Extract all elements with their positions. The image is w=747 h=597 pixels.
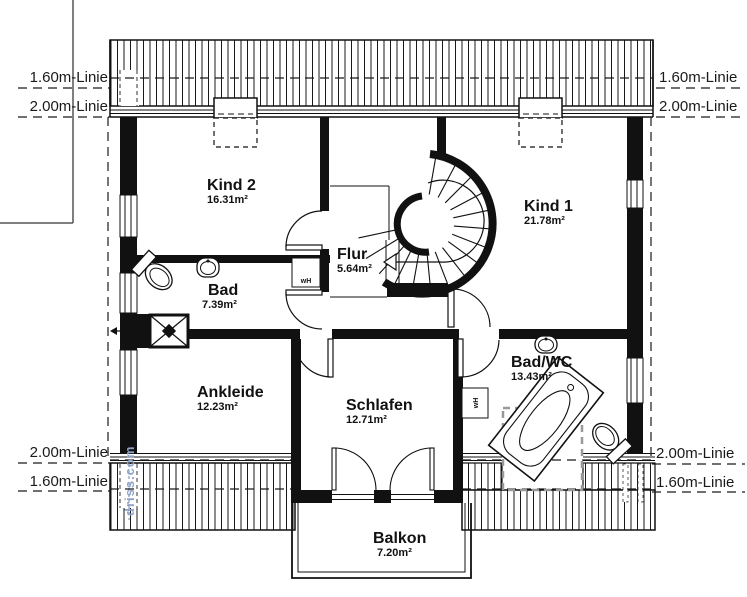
window-badwc: [627, 358, 643, 403]
watermark-text: driss.com: [122, 446, 137, 516]
room-label-kind1: Kind 1 21.78m²: [524, 198, 573, 227]
room-label-balkon: Balkon 7.20m²: [373, 530, 426, 559]
roof-strip-bottom-right: [462, 454, 655, 531]
door-balcony-left: [332, 448, 376, 490]
line-160-label-bottom-left: 1.60m-Linie: [30, 473, 108, 490]
line-200-label-bottom-left: 2.00m-Linie: [30, 444, 108, 461]
room-area: 7.20m²: [377, 547, 412, 559]
walls: [120, 117, 643, 503]
door-kind2: [286, 211, 322, 250]
door-balcony-right: [390, 448, 434, 490]
roof-strip-bottom-left: [110, 454, 295, 531]
room-area: 5.64m²: [337, 263, 372, 275]
room-area: 21.78m²: [524, 215, 565, 227]
room-label-flur: Flur 5.64m²: [337, 246, 372, 275]
room-area: 7.39m²: [202, 299, 237, 311]
room-name: Balkon: [373, 530, 426, 547]
room-label-schlafen: Schlafen 12.71m²: [346, 397, 413, 426]
windows: [120, 180, 643, 500]
window-kind1: [627, 180, 643, 208]
doors: [286, 211, 499, 490]
window-ankleide: [120, 350, 137, 395]
sink-bad: [197, 258, 219, 277]
dormer-window-left: [214, 98, 257, 147]
floorplan-drawing: wH wH Kind 2 16.31m² Kind 1 21.78m² Flur…: [0, 0, 747, 597]
line-200-label-top-right: 2.00m-Linie: [659, 98, 737, 115]
room-name: Bad: [208, 282, 238, 299]
wall-heater-bad: wH: [292, 258, 320, 287]
window-bad: [120, 273, 137, 313]
room-label-bad: Bad 7.39m²: [202, 282, 238, 311]
door-badwc: [458, 339, 499, 377]
wall-heater-badwc: wH: [462, 388, 488, 418]
room-name: Kind 2: [207, 177, 256, 194]
room-name: Ankleide: [197, 384, 264, 401]
line-200-label-bottom-right: 2.00m-Linie: [656, 445, 734, 462]
wall-heater-label: wH: [473, 398, 480, 410]
floorplan-canvas: wH wH Kind 2 16.31m² Kind 1 21.78m² Flur…: [0, 0, 747, 597]
door-bad: [286, 290, 322, 329]
room-name: Kind 1: [524, 198, 573, 215]
room-area: 12.71m²: [346, 414, 387, 426]
window-kind2: [120, 195, 137, 237]
room-area: 16.31m²: [207, 194, 248, 206]
line-160-label-bottom-right: 1.60m-Linie: [656, 474, 734, 491]
line-160-label-top-left: 1.60m-Linie: [30, 69, 108, 86]
door-kind1: [448, 289, 490, 327]
room-name: Bad/WC: [511, 354, 573, 371]
room-area: 12.23m²: [197, 401, 238, 413]
room-name: Flur: [337, 246, 367, 263]
room-label-ankleide: Ankleide 12.23m²: [197, 384, 264, 413]
line-200-label-top-left: 2.00m-Linie: [30, 98, 108, 115]
sink-badwc: [535, 336, 557, 353]
line-160-label-top-right: 1.60m-Linie: [659, 69, 737, 86]
room-area: 13.43m²: [511, 371, 552, 383]
dormer-window-right: [519, 98, 562, 147]
room-label-kind2: Kind 2 16.31m²: [207, 177, 256, 206]
vent-arrow-icon: [110, 327, 117, 335]
wall-heater-label: wH: [300, 278, 312, 285]
room-name: Schlafen: [346, 397, 413, 414]
spiral-staircase: [330, 154, 493, 297]
